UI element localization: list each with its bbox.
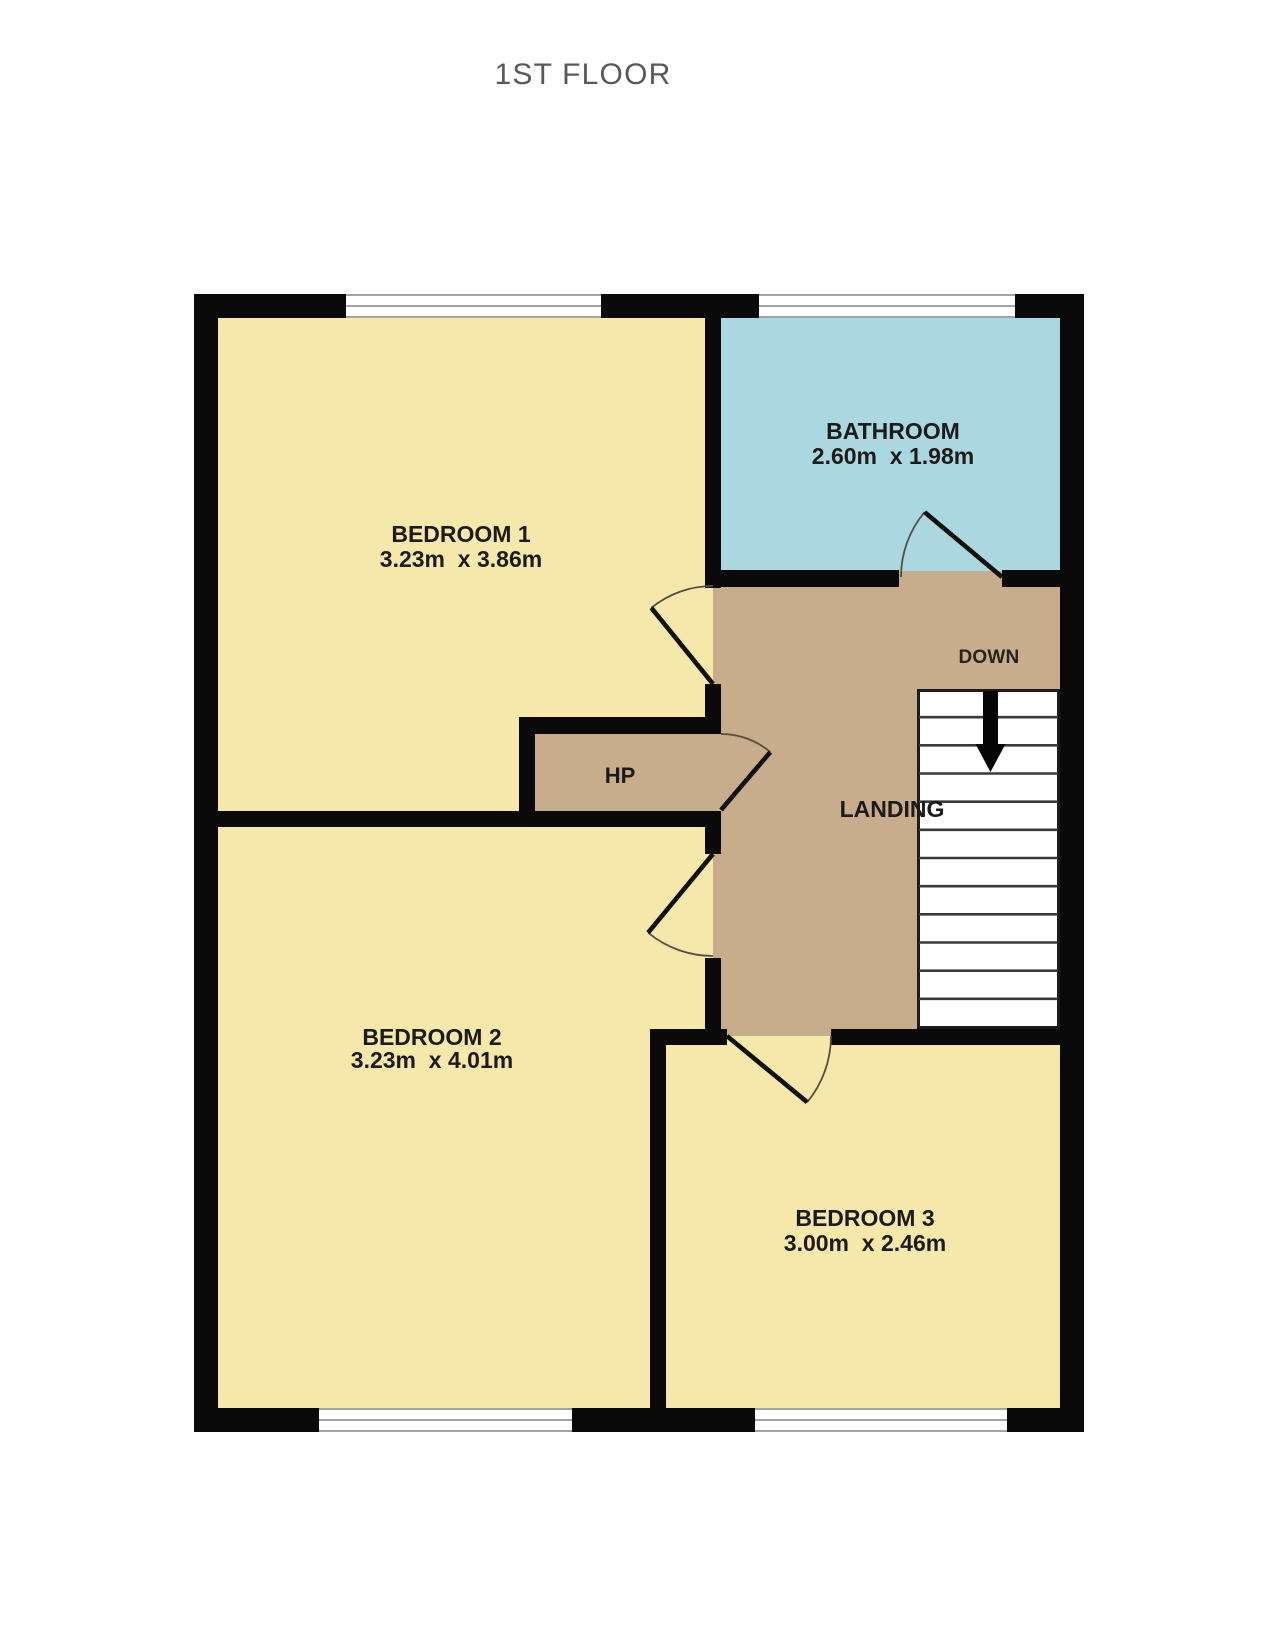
svg-text:DOWN: DOWN <box>959 647 1020 668</box>
svg-text:1ST FLOOR: 1ST FLOOR <box>495 58 672 91</box>
svg-text:LANDING: LANDING <box>840 796 945 822</box>
svg-text:2.60m x 1.98m: 2.60m x 1.98m <box>812 443 974 469</box>
svg-text:3.23m x 4.01m: 3.23m x 4.01m <box>351 1047 513 1073</box>
svg-text:3.00m x 2.46m: 3.00m x 2.46m <box>784 1230 946 1256</box>
svg-text:HP: HP <box>605 763 636 788</box>
svg-text:BEDROOM 1: BEDROOM 1 <box>391 521 531 547</box>
svg-text:BEDROOM 3: BEDROOM 3 <box>795 1205 934 1231</box>
svg-text:3.23m x 3.86m: 3.23m x 3.86m <box>380 546 542 572</box>
svg-text:BATHROOM: BATHROOM <box>826 418 960 444</box>
